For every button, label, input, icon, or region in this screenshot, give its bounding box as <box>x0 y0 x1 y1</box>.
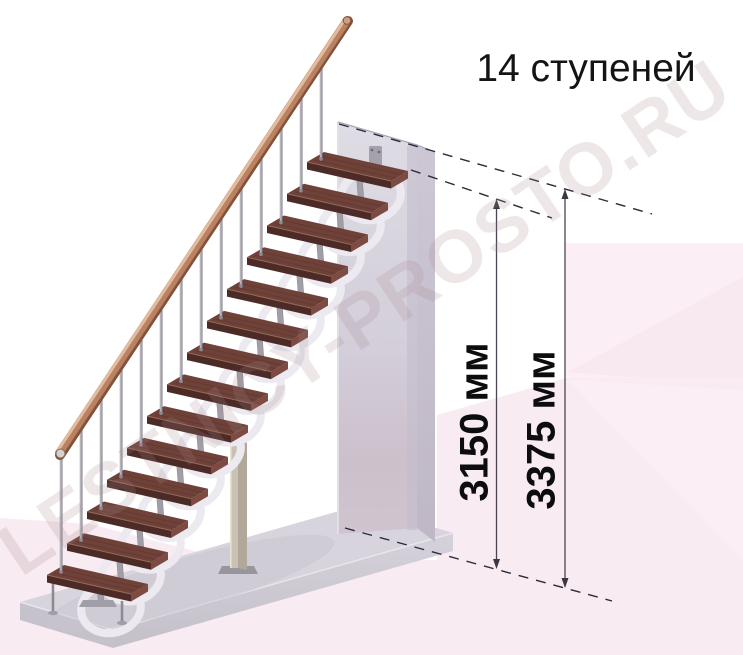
baluster-base <box>299 189 303 193</box>
wall-side-face <box>417 145 435 542</box>
rail-end-cap <box>56 449 65 458</box>
plate-hole <box>371 149 374 152</box>
dimension-label-3150: 3150 мм <box>453 342 497 501</box>
baluster-base <box>279 221 283 225</box>
baluster-base <box>199 348 203 352</box>
plate-hole <box>378 151 381 154</box>
staircase-diagram: LESTNICY-PROSTO.RU 14 ступеней 3150 мм 3… <box>0 0 743 655</box>
dimension-label-3375: 3375 мм <box>520 350 564 509</box>
baluster-base <box>319 157 323 161</box>
page-title: 14 ступеней <box>476 47 695 90</box>
baluster-base <box>239 284 243 288</box>
rail-top-cap <box>343 17 351 25</box>
baluster-base <box>179 380 183 384</box>
baluster-base <box>219 316 223 320</box>
diagram-canvas: LESTNICY-PROSTO.RU 14 ступеней 3150 мм 3… <box>0 0 743 655</box>
leg-foot <box>117 621 127 625</box>
baluster-base <box>259 253 263 257</box>
leg-foot <box>48 611 58 615</box>
wall-shade-band <box>407 146 417 530</box>
stem-foot-plate <box>79 600 117 607</box>
